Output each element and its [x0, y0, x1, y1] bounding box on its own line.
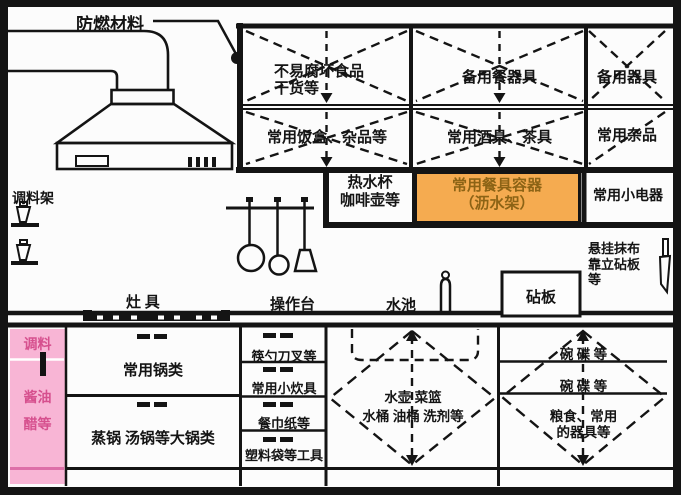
upper-cell-spare-tableware: 备用餐器具 [413, 66, 586, 87]
spice-rack [11, 202, 39, 265]
condiment-label-1: 调料 [10, 334, 65, 354]
fire-material-label: 防燃材料 [76, 10, 144, 35]
upper-cell-sundries: 常用杂品 [586, 124, 668, 145]
worktop-label: 操作台 [270, 293, 315, 314]
spice-rack-label: 调料架 [12, 188, 54, 208]
knife-icon [660, 239, 670, 292]
upper-cell-drinkware: 常用酒具、茶具 [413, 126, 586, 147]
drawer-handle [263, 437, 293, 442]
drawer-label-1: 筷勺刀叉等 [242, 346, 326, 365]
condiment-label-2: 酱油 [10, 387, 65, 407]
drawer-handle [263, 402, 293, 407]
drawer-label-4: 塑料袋等工具 [242, 445, 326, 464]
faucet-icon [441, 272, 450, 315]
pots-cell-label: 常用锅类 [67, 359, 239, 380]
range-hood [8, 31, 232, 169]
jar-icon [17, 240, 30, 260]
kitchen-storage-diagram: 防燃材料 不易腐坏食品 干货等 备用餐器具 备用器具 常用饭盒、杂品等 常用酒具… [0, 0, 681, 495]
under-sink-label: 水壶 菜篮 水桶 油桶 洗剂等 [337, 389, 489, 426]
drawer-handle [137, 402, 167, 407]
drawer-handle [263, 367, 293, 372]
hanging-note: 悬挂抹布 靠立砧板 等 [588, 241, 640, 288]
stove-label: 灶 具 [126, 291, 160, 312]
drawer-label-2: 常用小炊具 [242, 378, 326, 397]
right-cell-bowls-1: 碗 碟 等 [500, 343, 667, 363]
cutting-board-label: 砧板 [502, 286, 580, 307]
upper-cell-durable-food: 不易腐坏食品 干货等 [274, 64, 364, 98]
large-pots-cell-label: 蒸锅 汤锅等大锅类 [67, 427, 239, 448]
small-appliances-label: 常用小电器 [586, 185, 670, 205]
right-cell-bowls-2: 碗 碟 等 [500, 375, 667, 395]
right-cell-grain: 粮食、常用 的器具等 [500, 409, 667, 441]
sink-label: 水池 [386, 294, 416, 315]
drawer-handle [137, 334, 167, 339]
drain-rack-label: 常用餐具容器 （沥水架） [415, 177, 579, 213]
drawer-handle [263, 333, 293, 338]
upper-cell-lunchboxes: 常用饭盒、杂品等 [243, 126, 411, 147]
drawer-label-3: 餐巾纸等 [242, 413, 326, 432]
utensil-rail [226, 197, 316, 275]
condiment-label-3: 醋等 [10, 414, 65, 434]
hot-water-cell-label: 热水杯 咖啡壶等 [327, 174, 413, 210]
upper-cell-spare-utensils: 备用器具 [586, 66, 668, 87]
